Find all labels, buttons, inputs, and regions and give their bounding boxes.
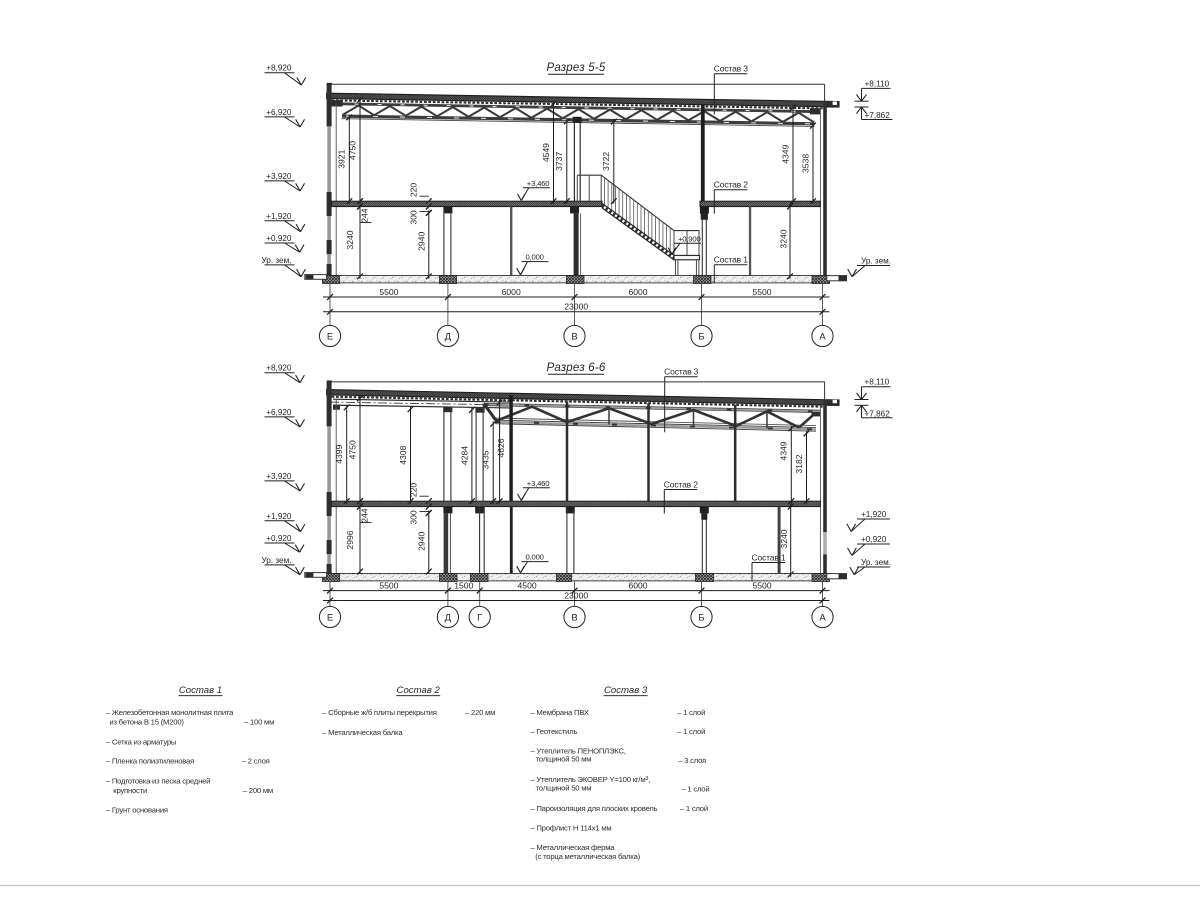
svg-text:+0,920: +0,920	[266, 234, 292, 243]
svg-text:Б: Б	[698, 331, 704, 342]
svg-text:Состав 3: Состав 3	[664, 367, 698, 377]
svg-text:3737: 3737	[554, 152, 564, 171]
svg-text:Состав 1: Состав 1	[179, 685, 222, 696]
svg-text:6000: 6000	[628, 287, 647, 297]
svg-text:2940: 2940	[417, 232, 427, 251]
svg-text:+8,920: +8,920	[266, 64, 292, 73]
svg-text:244: 244	[359, 208, 369, 223]
svg-text:+6,920: +6,920	[266, 108, 292, 117]
svg-text:5500: 5500	[379, 287, 398, 297]
svg-text:3240: 3240	[779, 529, 789, 548]
svg-text:+7,862: +7,862	[865, 409, 891, 418]
svg-text:+3,460: +3,460	[527, 479, 550, 488]
svg-text:300: 300	[408, 510, 418, 525]
svg-text:– 200 мм: – 200 мм	[243, 786, 273, 795]
svg-text:– 220 мм: – 220 мм	[465, 708, 495, 717]
svg-text:Состав 2: Состав 2	[664, 479, 698, 489]
svg-text:244: 244	[359, 508, 369, 523]
svg-text:3182: 3182	[794, 454, 804, 473]
svg-text:2996: 2996	[345, 530, 355, 549]
svg-text:+1,920: +1,920	[266, 512, 292, 521]
svg-text:– Утеплитель ЭКОВЕР Y=100 кг/м: – Утеплитель ЭКОВЕР Y=100 кг/м3,	[530, 775, 650, 784]
svg-text:Состав 3: Состав 3	[604, 685, 648, 696]
svg-text:4284: 4284	[459, 446, 469, 465]
svg-text:Состав 1: Состав 1	[714, 255, 748, 265]
svg-text:3240: 3240	[345, 230, 355, 249]
svg-text:+0,920: +0,920	[266, 534, 292, 543]
svg-text:– Грунт основания: – Грунт основания	[106, 806, 168, 815]
svg-text:Ур. зем.: Ур. зем.	[261, 556, 291, 565]
svg-text:– Металлическая балка: – Металлическая балка	[322, 728, 403, 737]
svg-text:+0,900: +0,900	[678, 234, 701, 243]
svg-text:– Мембрана ПВХ: – Мембрана ПВХ	[530, 708, 588, 717]
svg-text:– 1 слой: – 1 слой	[677, 708, 705, 717]
svg-text:крупности: крупности	[113, 786, 147, 795]
svg-text:4500: 4500	[518, 580, 537, 590]
svg-text:0,000: 0,000	[526, 553, 544, 562]
svg-text:из бетона В 15 (М200): из бетона В 15 (М200)	[109, 718, 184, 727]
svg-text:– Пленка полиэтиленовая: – Пленка полиэтиленовая	[106, 757, 194, 766]
svg-text:3921: 3921	[337, 149, 347, 168]
svg-text:+8,920: +8,920	[266, 364, 292, 373]
svg-text:– Железобетонная монолитная п: – Железобетонная монолитная плита	[106, 708, 234, 717]
svg-text:4349: 4349	[779, 441, 789, 460]
svg-text:1500: 1500	[454, 580, 473, 590]
svg-text:300: 300	[408, 210, 418, 225]
svg-text:3538: 3538	[800, 154, 810, 173]
svg-text:4750: 4750	[347, 141, 357, 160]
svg-text:Ур. зем.: Ур. зем.	[861, 257, 891, 266]
svg-text:4399: 4399	[334, 444, 344, 463]
svg-text:Д: Д	[445, 612, 452, 623]
svg-text:+3,920: +3,920	[266, 172, 292, 181]
svg-text:– Пароизоляция для плоских кро: – Пароизоляция для плоских кровель	[530, 804, 657, 813]
svg-text:Состав 2: Состав 2	[397, 685, 441, 696]
svg-text:– Профлист Н 114х1 мм: – Профлист Н 114х1 мм	[530, 823, 611, 832]
svg-text:В: В	[571, 612, 577, 623]
svg-text:+6,920: +6,920	[266, 408, 292, 417]
svg-text:+0,920: +0,920	[861, 535, 887, 544]
svg-text:Ур. зем.: Ур. зем.	[861, 558, 891, 567]
svg-text:– 1 слой: – 1 слой	[681, 785, 709, 794]
svg-text:6000: 6000	[628, 580, 647, 590]
svg-text:Д: Д	[445, 331, 452, 342]
svg-text:В: В	[571, 331, 577, 342]
svg-text:220: 220	[408, 183, 418, 198]
svg-text:5500: 5500	[379, 580, 398, 590]
svg-text:+7,862: +7,862	[865, 111, 891, 120]
svg-text:А: А	[819, 331, 826, 342]
svg-text:– Металлическая ферма: – Металлическая ферма	[530, 843, 615, 852]
svg-text:+3,460: +3,460	[527, 179, 550, 188]
svg-text:220: 220	[408, 483, 418, 498]
svg-text:4349: 4349	[780, 144, 790, 163]
svg-text:Разрез 5-5: Разрез 5-5	[547, 62, 606, 74]
svg-text:4750: 4750	[347, 440, 357, 459]
svg-text:– Подготовка из песка средней: – Подготовка из песка средней	[106, 776, 210, 785]
svg-text:Ур. зем.: Ур. зем.	[261, 256, 291, 265]
svg-text:+1,920: +1,920	[266, 212, 292, 221]
svg-text:4549: 4549	[541, 143, 551, 162]
svg-text:23000: 23000	[564, 590, 588, 600]
svg-text:– 100 мм: – 100 мм	[244, 718, 274, 727]
svg-text:+8,110: +8,110	[865, 378, 890, 387]
svg-text:0,000: 0,000	[526, 253, 544, 262]
svg-text:5500: 5500	[752, 287, 771, 297]
svg-text:– Сетка из арматуры: – Сетка из арматуры	[106, 737, 176, 746]
svg-text:3435: 3435	[481, 450, 491, 469]
svg-text:Разрез 6-6: Разрез 6-6	[547, 362, 606, 374]
svg-text:– 1 слой: – 1 слой	[680, 804, 708, 813]
svg-text:2940: 2940	[417, 532, 427, 551]
svg-text:5500: 5500	[752, 580, 771, 590]
svg-text:Е: Е	[327, 612, 333, 623]
svg-text:толщиной 50 мм: толщиной 50 мм	[536, 784, 592, 793]
svg-text:толщиной 50 мм: толщиной 50 мм	[536, 754, 592, 763]
svg-text:Б: Б	[698, 612, 704, 623]
svg-text:23000: 23000	[564, 302, 588, 312]
svg-text:4308: 4308	[398, 445, 408, 464]
svg-text:6000: 6000	[502, 287, 521, 297]
svg-text:Состав 1: Состав 1	[751, 552, 785, 562]
svg-text:3722: 3722	[601, 152, 611, 171]
svg-text:Е: Е	[327, 331, 333, 342]
svg-text:– Сборные ж/б плиты перекрытия: – Сборные ж/б плиты перекрытия	[322, 708, 437, 717]
svg-text:Г: Г	[477, 612, 482, 623]
svg-text:4626: 4626	[496, 438, 506, 457]
svg-text:3240: 3240	[778, 229, 788, 248]
svg-text:– 3 слоя: – 3 слоя	[678, 756, 706, 765]
svg-text:А: А	[819, 612, 826, 623]
svg-text:+3,920: +3,920	[266, 472, 292, 481]
svg-text:– Геотекстиль: – Геотекстиль	[530, 727, 577, 736]
svg-text:+1,920: +1,920	[861, 510, 887, 519]
svg-text:(с торца металлическая балка): (с торца металлическая балка)	[535, 852, 640, 861]
svg-text:Состав 3: Состав 3	[714, 64, 748, 74]
svg-text:Состав 2: Состав 2	[714, 180, 748, 190]
svg-text:+8,110: +8,110	[865, 79, 890, 88]
svg-text:– 1 слой: – 1 слой	[677, 727, 705, 736]
svg-text:– 2 слоя: – 2 слоя	[242, 757, 270, 766]
